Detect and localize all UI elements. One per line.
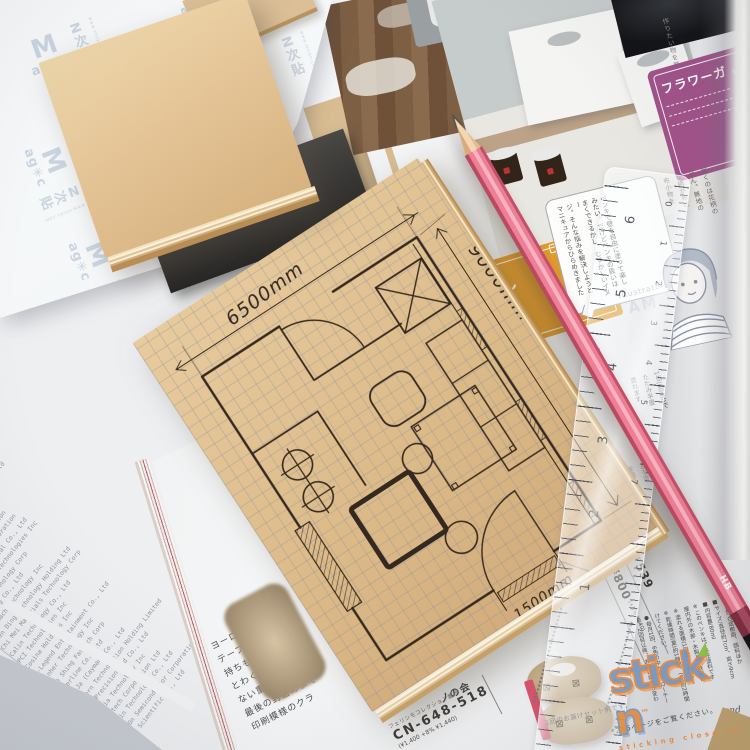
stickn-logo-watermark: stickn™ sticking close to you [605, 638, 750, 750]
ruler-digit-left: 5 [614, 288, 630, 298]
ruler-digit-right: 0 [662, 200, 673, 207]
ruler-digit-left: 3 [596, 435, 612, 445]
ruler-digit-right: 5 [637, 399, 648, 406]
ruler-digit-right: 4 [642, 359, 653, 366]
page-curl-highlight [700, 0, 750, 560]
ruler-digit-left: 2 [587, 509, 603, 519]
stickn-watermark-logo: N次貼 www.stickn.com [275, 30, 317, 81]
ruler-digit-right: 3 [647, 320, 658, 327]
ruler-digit-right: 7 [628, 478, 639, 485]
ruler-digit-left: 6 [623, 215, 639, 225]
ruler-digit-left: 1 [578, 582, 594, 592]
trademark-symbol: ™ [640, 708, 650, 719]
ruler-digit-right: 1 [657, 240, 668, 247]
ruler-digit-right: 2 [652, 280, 663, 287]
desk-photo-scene: 作りたい物を夢みて、白い布を用意。 フラワーガ 縫 届くのは花柄のせん。無地の花… [0, 0, 750, 750]
